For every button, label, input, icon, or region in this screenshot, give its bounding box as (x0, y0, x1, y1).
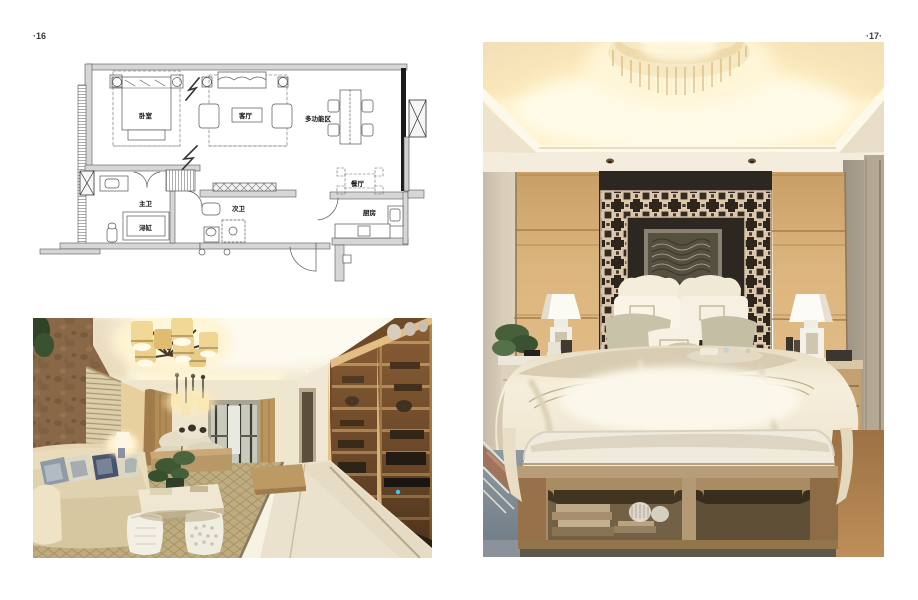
svg-text:厨房: 厨房 (363, 208, 377, 217)
svg-text:多功能区: 多功能区 (305, 114, 332, 123)
svg-text:·16: ·16 (33, 31, 46, 41)
svg-text:主卫: 主卫 (139, 199, 153, 208)
svg-text:卧室: 卧室 (139, 111, 153, 120)
svg-text:次卫: 次卫 (232, 204, 246, 213)
svg-text:浔缸: 浔缸 (139, 223, 153, 232)
svg-text:餐厅: 餐厅 (350, 179, 365, 188)
svg-text:·17·: ·17· (866, 31, 882, 41)
svg-text:客厅: 客厅 (238, 111, 253, 120)
